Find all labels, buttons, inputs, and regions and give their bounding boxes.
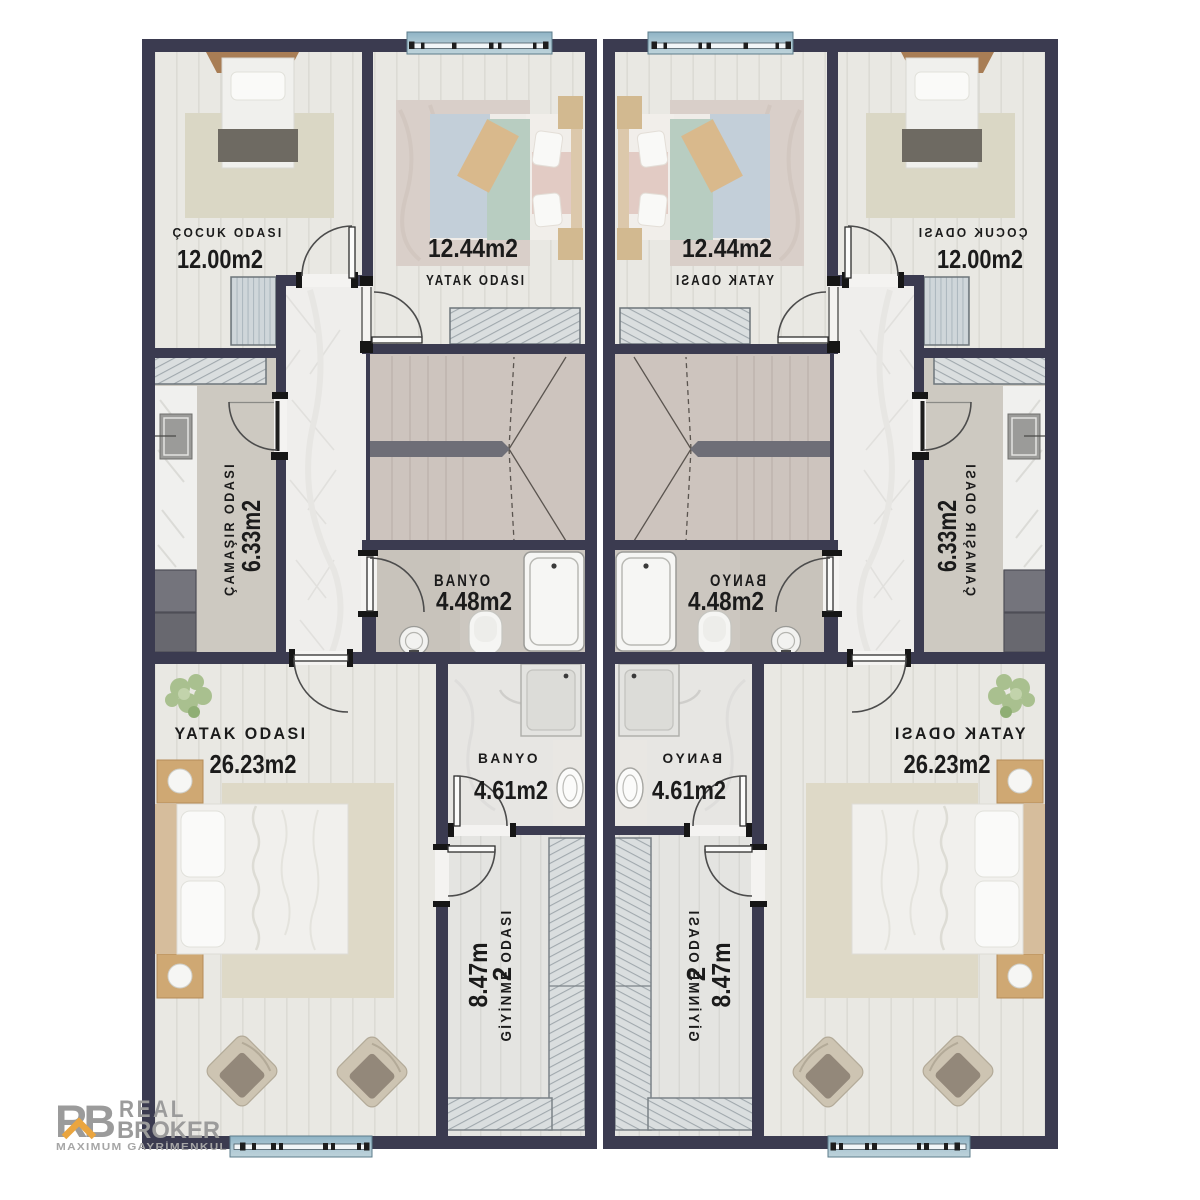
svg-text:YATAK ODASI: YATAK ODASI [175, 725, 308, 743]
svg-text:26.23m2: 26.23m2 [904, 749, 991, 779]
svg-text:12.00m2: 12.00m2 [937, 244, 1023, 274]
svg-text:4.61m2: 4.61m2 [652, 775, 726, 805]
svg-text:RB: RB [55, 1096, 114, 1147]
svg-text:2: 2 [487, 967, 517, 981]
svg-text:ÇAMAŞIR ODASI: ÇAMAŞIR ODASI [222, 462, 237, 596]
svg-text:12.44m2: 12.44m2 [428, 233, 518, 263]
svg-text:4.61m2: 4.61m2 [474, 775, 548, 805]
svg-text:26.23m2: 26.23m2 [210, 749, 297, 779]
svg-text:BANYO: BANYO [478, 751, 540, 766]
svg-text:4.48m2: 4.48m2 [688, 586, 764, 616]
svg-text:12.44m2: 12.44m2 [682, 233, 772, 263]
svg-text:BROKER: BROKER [117, 1117, 220, 1144]
svg-text:6.33m2: 6.33m2 [236, 500, 266, 572]
svg-text:6.33m2: 6.33m2 [932, 500, 962, 572]
svg-text:4.48m2: 4.48m2 [436, 586, 512, 616]
svg-text:12.00m2: 12.00m2 [177, 244, 263, 274]
svg-text:2: 2 [681, 967, 711, 981]
svg-text:MAXIMUM GAYRİMENKUL: MAXIMUM GAYRİMENKUL [56, 1140, 228, 1153]
svg-text:YATAK ODASI: YATAK ODASI [426, 273, 526, 289]
svg-text:ÇOCUK ODASI: ÇOCUK ODASI [173, 225, 284, 240]
